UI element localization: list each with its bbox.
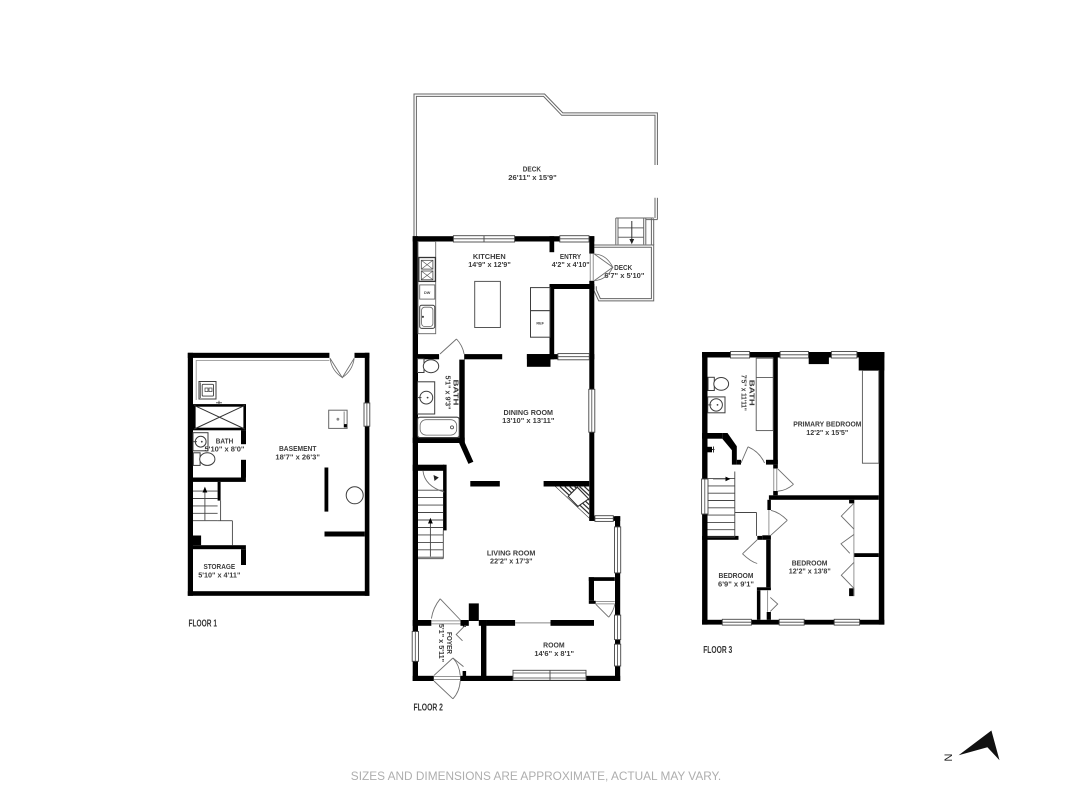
svg-text:5'1" x 9'3": 5'1" x 9'3": [443, 376, 452, 410]
svg-text:SIZES AND DIMENSIONS ARE APPRO: SIZES AND DIMENSIONS ARE APPROXIMATE, AC…: [351, 771, 721, 783]
svg-text:6'9" x 9'1": 6'9" x 9'1": [718, 579, 754, 588]
svg-text:12'2" x 13'8": 12'2" x 13'8": [789, 567, 831, 576]
svg-text:5'1" x 5'11": 5'1" x 5'11": [437, 624, 446, 663]
svg-text:5'10" x 8'0": 5'10" x 8'0": [205, 445, 245, 454]
svg-text:14'9" x 12'9": 14'9" x 12'9": [468, 260, 511, 269]
svg-text:22'2" x 17'3": 22'2" x 17'3": [490, 557, 533, 566]
svg-text:12'2" x 15'5": 12'2" x 15'5": [806, 428, 848, 437]
svg-text:FLOOR 3: FLOOR 3: [703, 645, 732, 656]
svg-text:14'6" x 8'1": 14'6" x 8'1": [534, 649, 574, 658]
svg-text:26'11" x 15'9": 26'11" x 15'9": [508, 173, 557, 182]
svg-text:FLOOR 2: FLOOR 2: [414, 703, 444, 714]
svg-text:DW: DW: [424, 291, 431, 295]
svg-text:18'7" x 26'3": 18'7" x 26'3": [275, 452, 320, 461]
svg-text:5'10" x 4'11": 5'10" x 4'11": [198, 570, 241, 579]
svg-text:N: N: [943, 753, 955, 761]
svg-text:4'2" x 4'10": 4'2" x 4'10": [552, 260, 590, 269]
svg-text:FLOOR 1: FLOOR 1: [189, 618, 218, 629]
svg-text:REF: REF: [536, 322, 544, 326]
svg-text:13'10" x 13'11": 13'10" x 13'11": [502, 416, 555, 425]
svg-text:7'5" x 11'11": 7'5" x 11'11": [739, 375, 748, 411]
svg-text:6'7" x 5'10": 6'7" x 5'10": [604, 271, 645, 280]
